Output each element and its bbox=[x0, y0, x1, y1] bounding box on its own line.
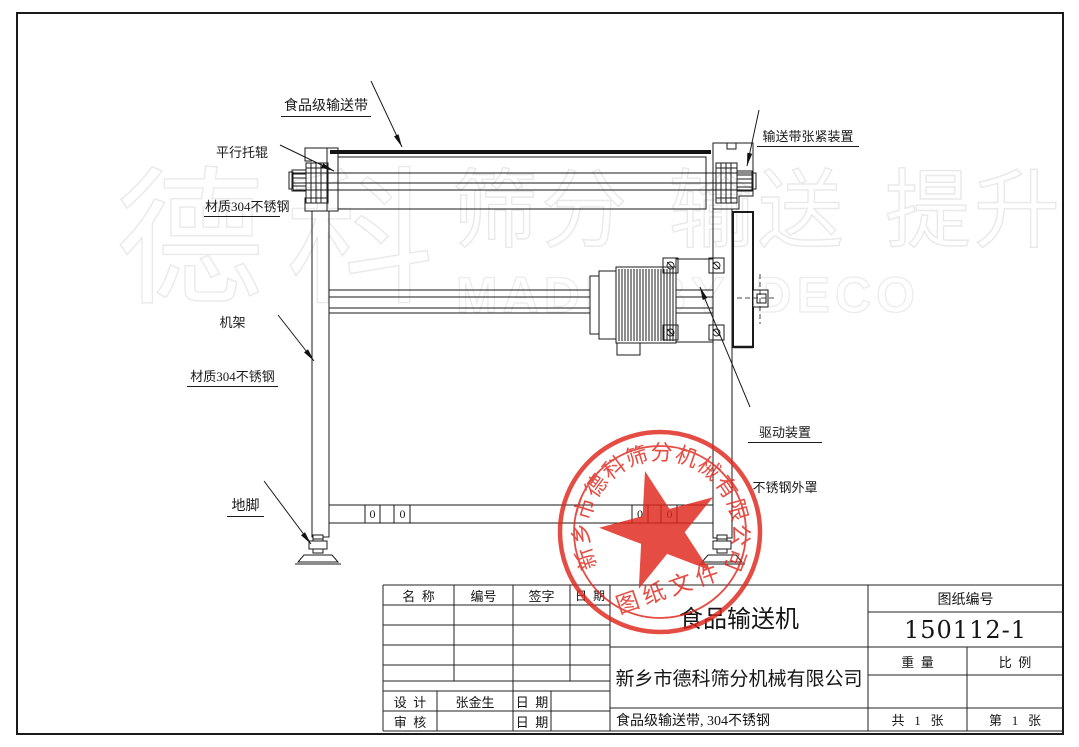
stamp-doc-type: 图纸文件 bbox=[613, 558, 727, 618]
company-stamp: 新乡市德科筛分机械有限公司 图纸文件 bbox=[0, 0, 1079, 747]
drawing-sheet: 德科 筛分 输送 提升 MADE BY DECO bbox=[0, 0, 1079, 747]
